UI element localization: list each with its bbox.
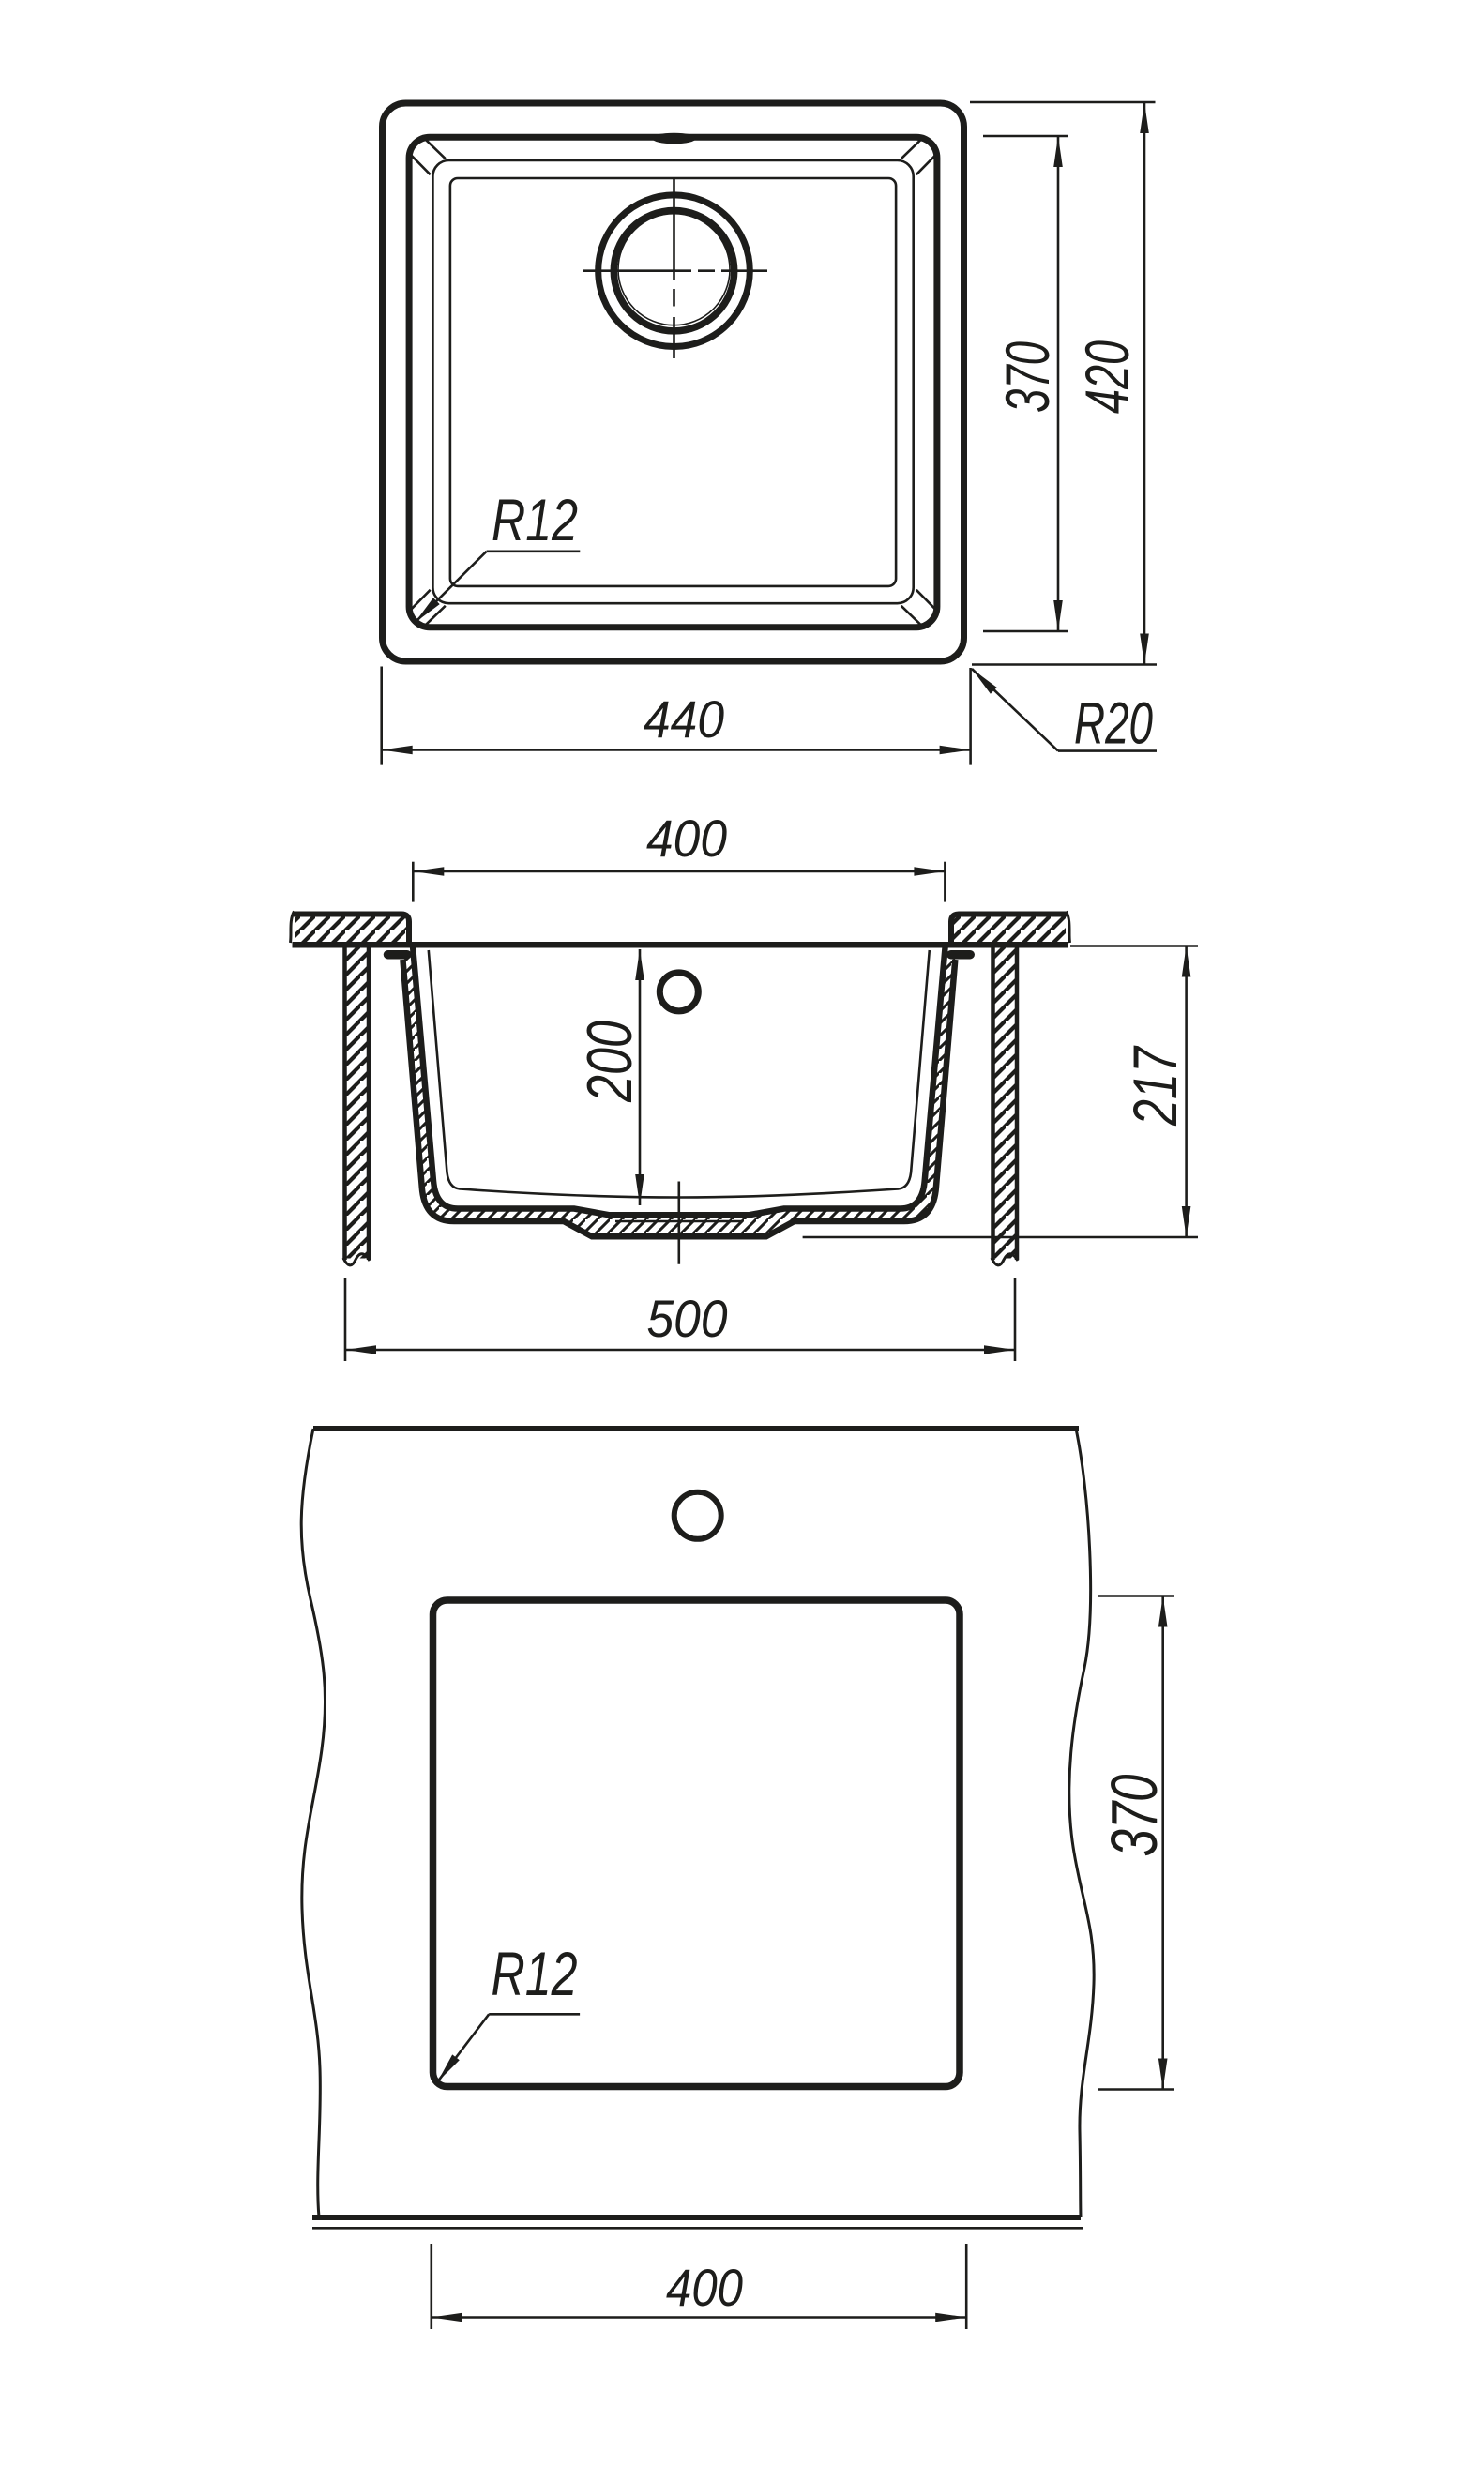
svg-text:400: 400	[646, 809, 727, 868]
svg-text:R20: R20	[1074, 691, 1153, 757]
svg-text:440: 440	[644, 689, 724, 749]
svg-text:500: 500	[647, 1289, 728, 1348]
svg-text:420: 420	[1072, 340, 1142, 414]
svg-text:217: 217	[1120, 1045, 1189, 1127]
svg-text:400: 400	[666, 2258, 743, 2317]
svg-text:200: 200	[574, 1021, 645, 1103]
svg-text:R12: R12	[492, 488, 578, 553]
svg-text:370: 370	[1098, 1774, 1171, 1856]
svg-text:R12: R12	[492, 1939, 578, 2008]
svg-text:370: 370	[992, 341, 1062, 413]
